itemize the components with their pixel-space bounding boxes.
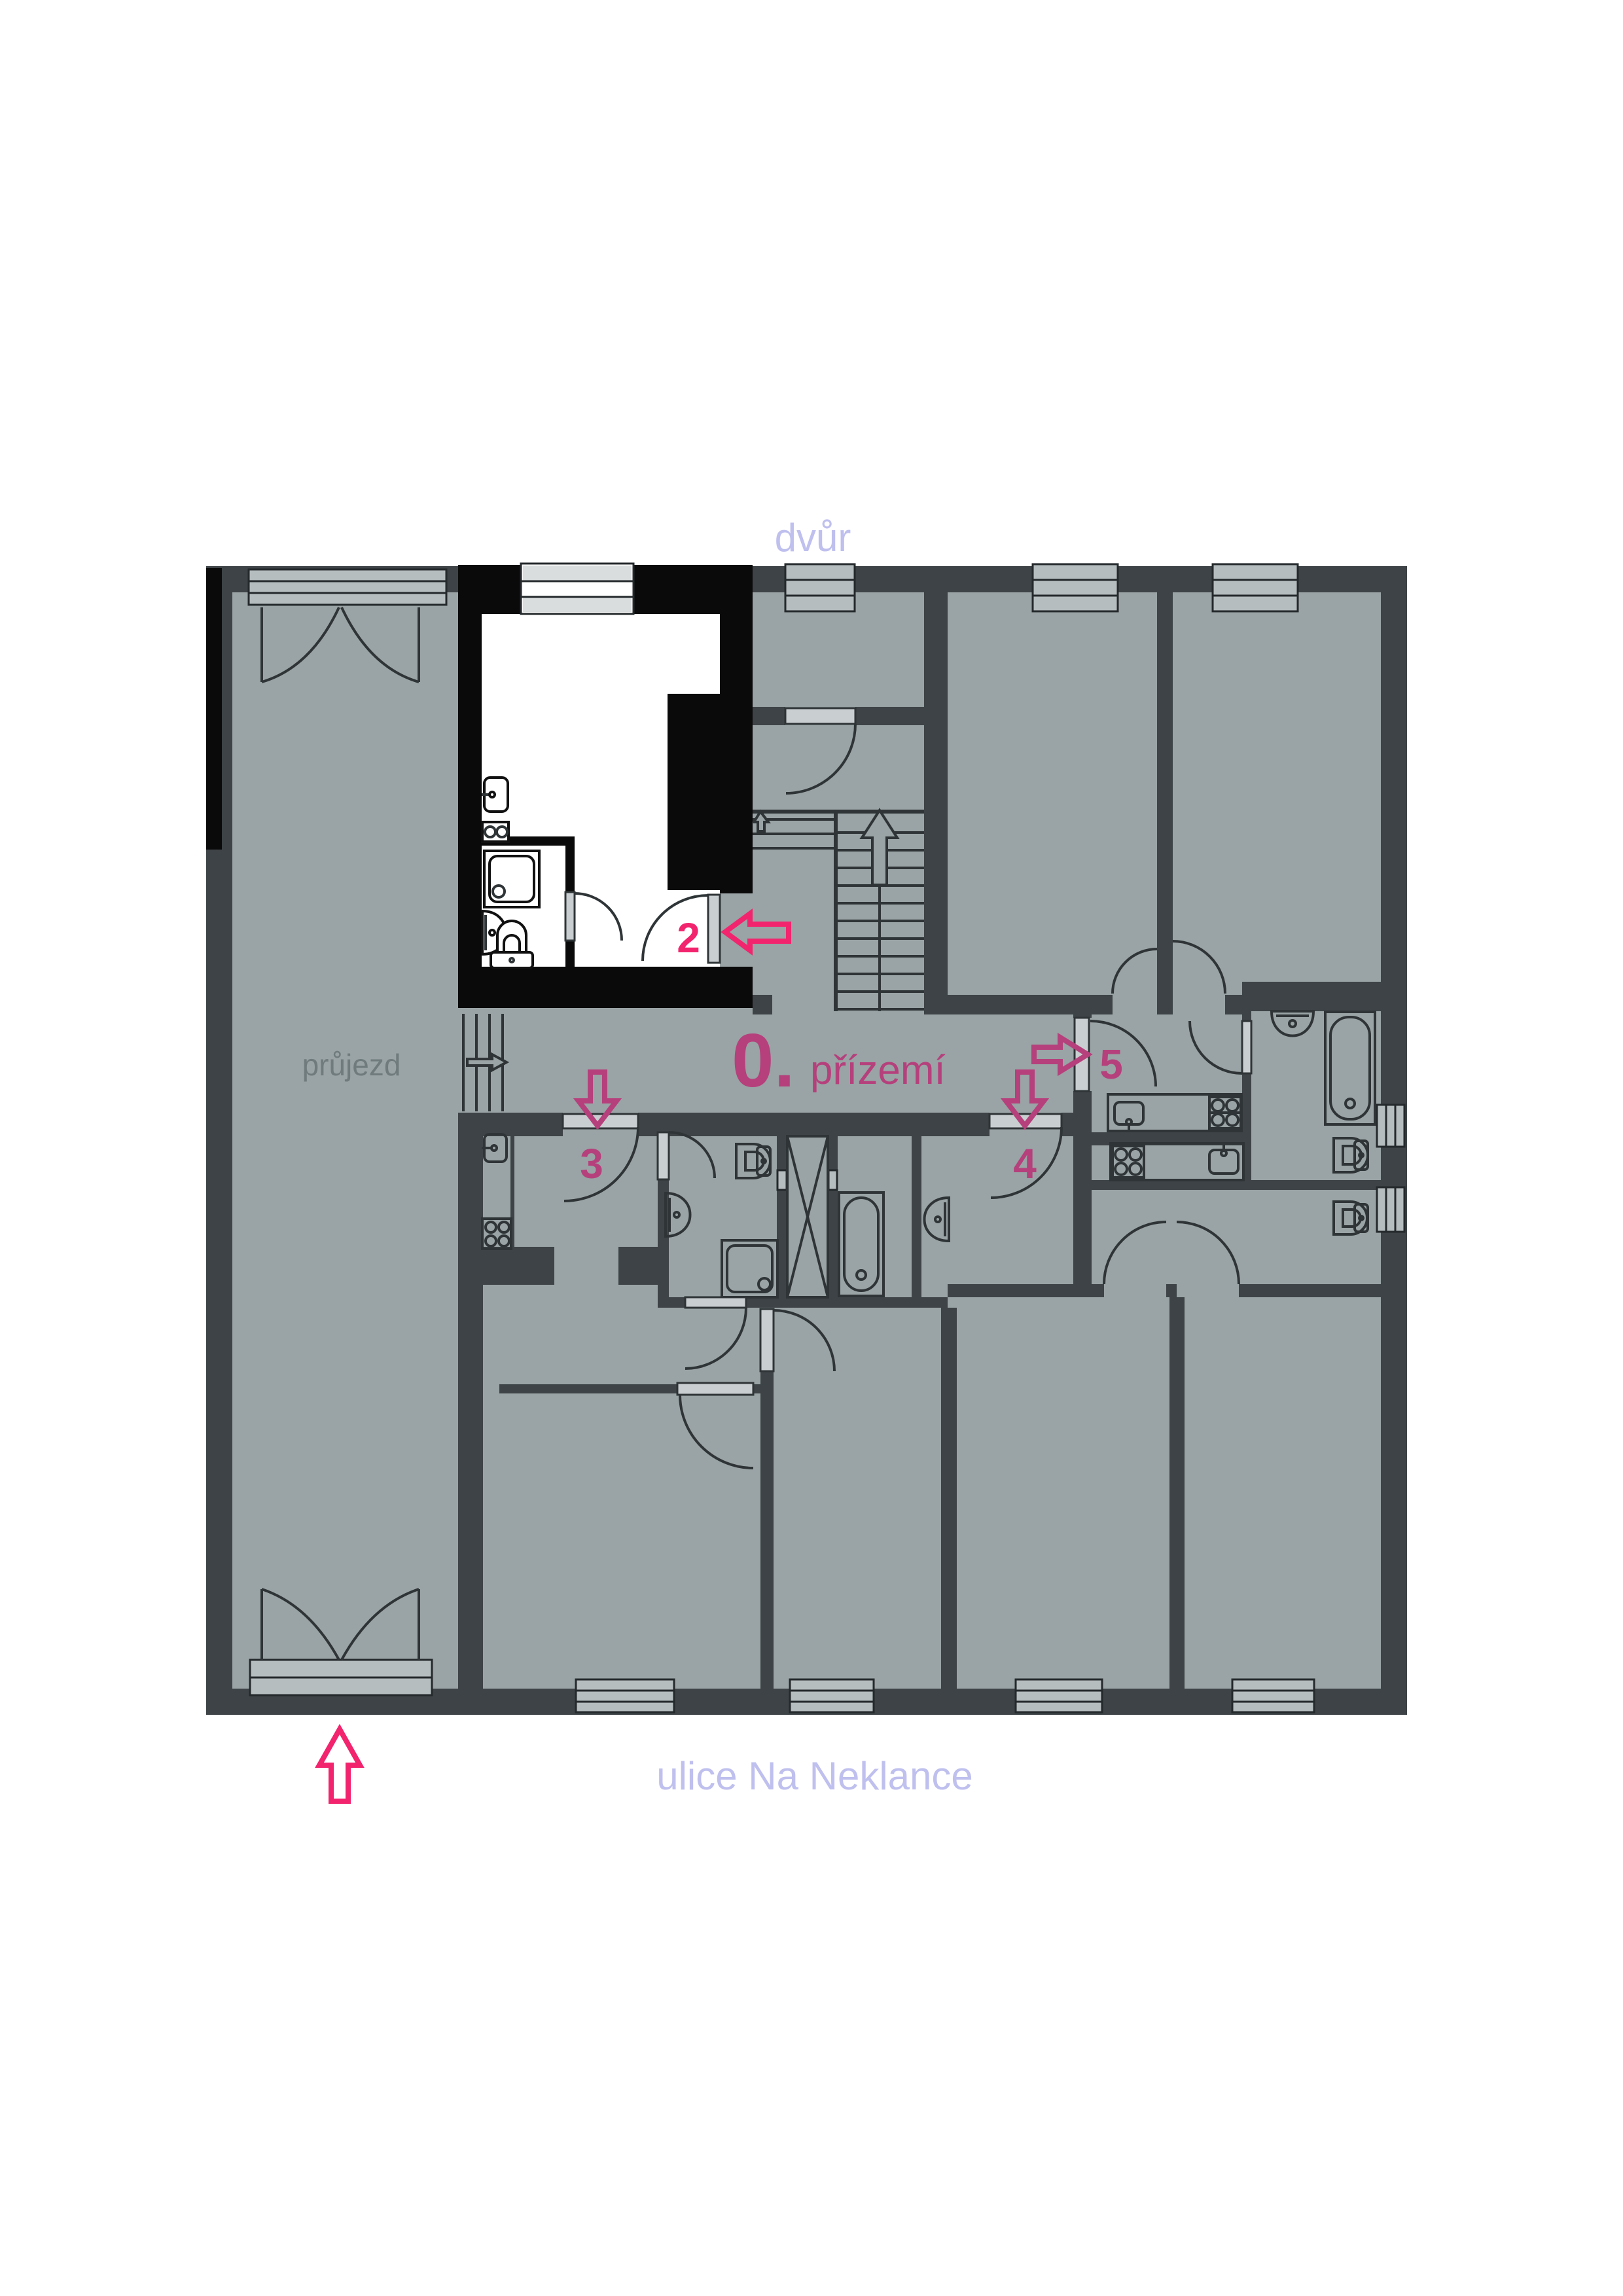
- unit-3-label: 3: [580, 1140, 603, 1187]
- door-leaf: [685, 1297, 746, 1308]
- window: [1033, 564, 1118, 611]
- window: [1232, 1679, 1314, 1712]
- floor-plan-page: dvůr ulice Na Neklance: [0, 0, 1623, 2296]
- door-leaf-unit-2: [708, 895, 720, 963]
- door-leaf: [1242, 1021, 1251, 1073]
- unit-5-label: 5: [1099, 1041, 1123, 1088]
- door-leaf: [658, 1132, 669, 1179]
- window: [576, 1679, 674, 1712]
- courtyard-label: dvůr: [775, 516, 851, 560]
- floor-number: 0.: [732, 1018, 795, 1103]
- unit-2-label: 2: [677, 914, 700, 961]
- stove-icon: [482, 822, 508, 842]
- unit-4-label: 4: [1013, 1140, 1037, 1187]
- window: [1213, 564, 1298, 611]
- window: [1016, 1679, 1102, 1712]
- unit-2-white-flat: [458, 564, 753, 1008]
- window: [785, 564, 855, 611]
- window: [1377, 1187, 1404, 1232]
- outer-wall-black-strip: [206, 568, 222, 850]
- kitchen-sink-icon: [482, 778, 508, 812]
- door-leaf: [565, 892, 575, 941]
- door-leaf: [760, 1309, 774, 1371]
- shower-icon: [484, 851, 539, 907]
- door-leaf: [785, 708, 855, 724]
- street-entry-arrow-icon: [319, 1729, 360, 1801]
- passage-label: průjezd: [302, 1048, 401, 1082]
- door-leaf: [677, 1383, 753, 1395]
- window: [790, 1679, 874, 1712]
- window: [1377, 1105, 1404, 1147]
- floor-plan: dvůr ulice Na Neklance: [0, 0, 1623, 2296]
- floor-name: přízemí: [810, 1048, 946, 1093]
- street-label: ulice Na Neklance: [656, 1754, 973, 1798]
- window: [521, 564, 633, 614]
